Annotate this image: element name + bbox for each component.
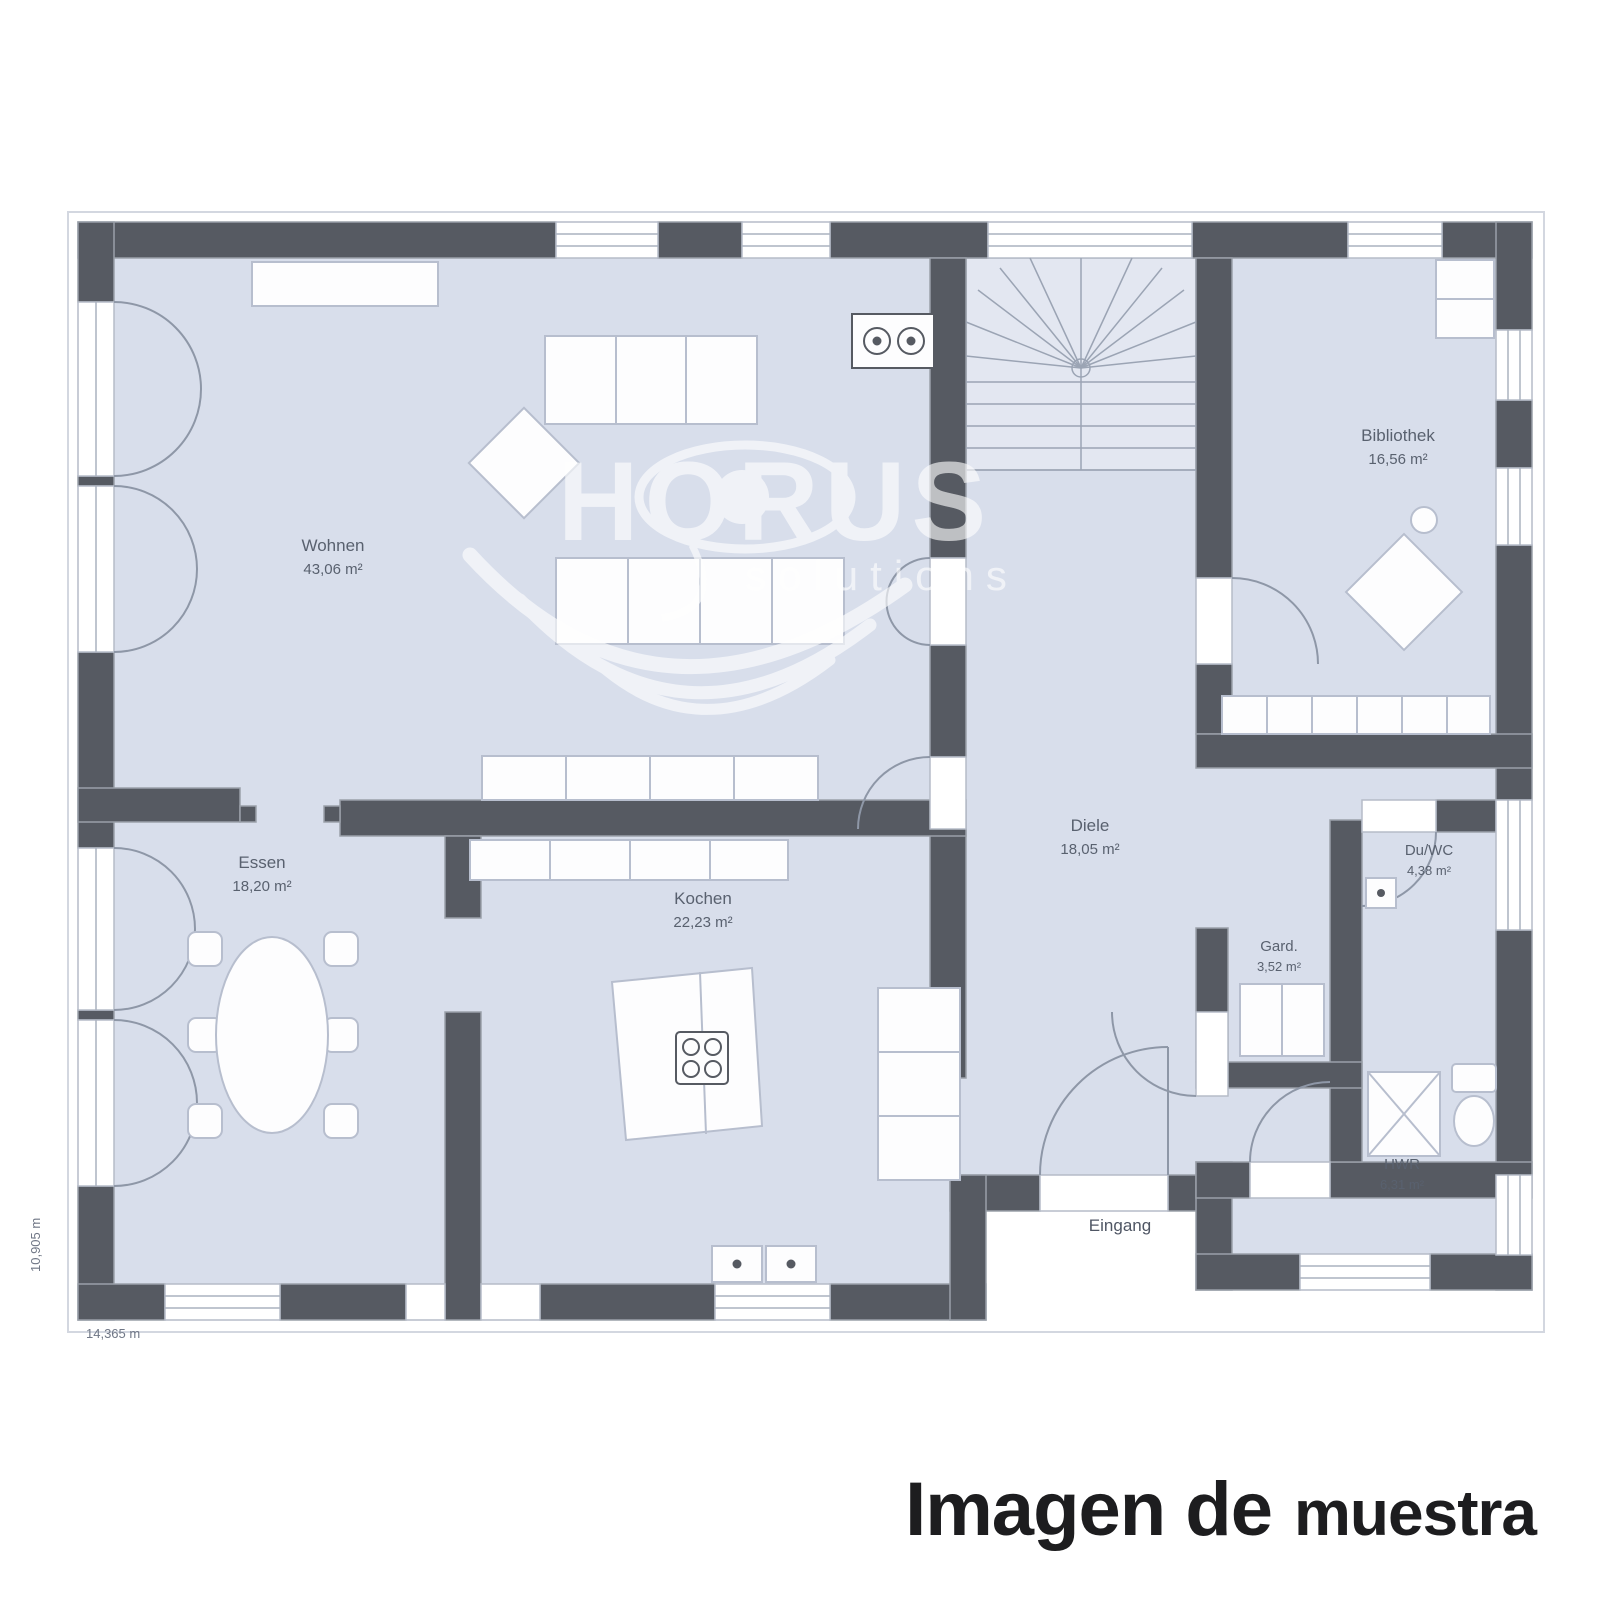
wardrobe-cabinet bbox=[1240, 984, 1324, 1056]
kitchen-island bbox=[612, 968, 762, 1140]
kitchen-counter-east bbox=[878, 988, 960, 1180]
dining-set bbox=[188, 932, 358, 1138]
entrance-label: Eingang bbox=[1030, 1216, 1210, 1236]
kitchen-counter-north bbox=[470, 840, 788, 880]
floor-plan-page: HORUS solutions Wohnen 43,06 m² Essen 18… bbox=[0, 0, 1600, 1600]
dimension-left: 10,905 m bbox=[28, 1218, 43, 1272]
chimney-symbol bbox=[852, 314, 934, 368]
sideboard bbox=[252, 262, 438, 306]
floor-plan-drawing: HORUS solutions bbox=[0, 0, 1600, 1600]
sample-image-caption: Imagen demuestra bbox=[905, 1466, 1536, 1553]
dimension-bottom: 14,365 m bbox=[86, 1326, 140, 1341]
caption-part2: muestra bbox=[1294, 1477, 1536, 1549]
lowboard bbox=[482, 756, 818, 800]
caption-part1: Imagen de bbox=[905, 1467, 1272, 1552]
